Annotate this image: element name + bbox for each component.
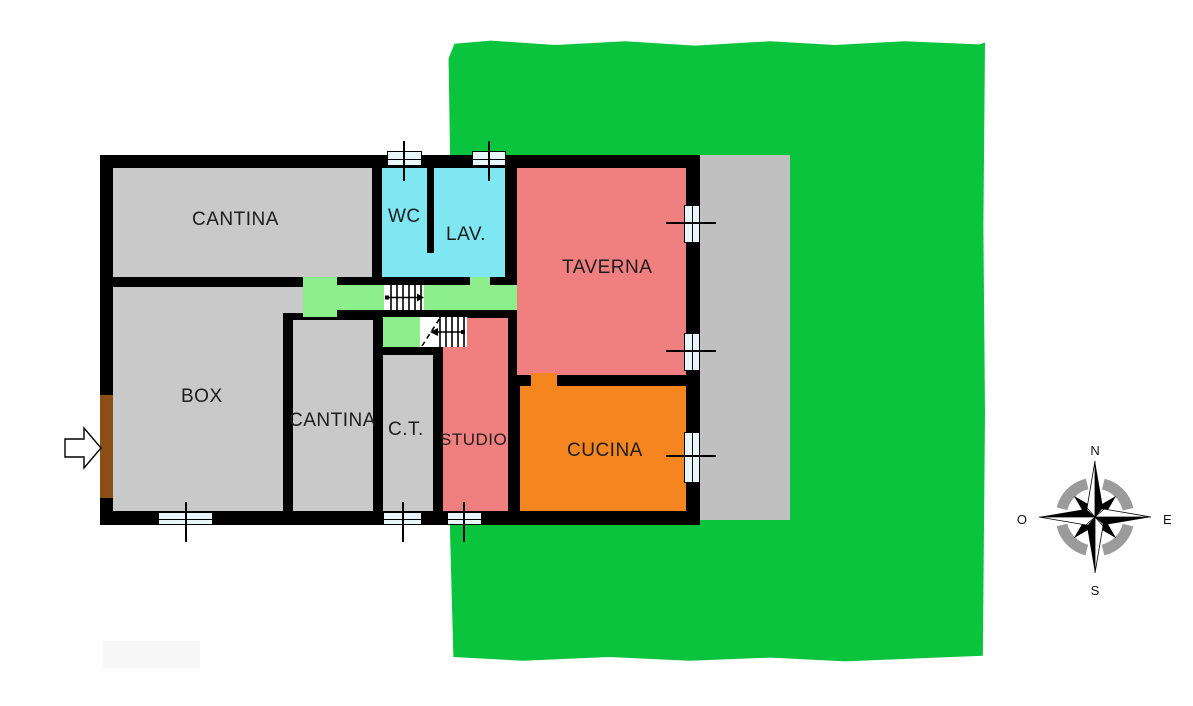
box-passage	[283, 287, 303, 313]
compass-north-label: N	[1090, 443, 1099, 458]
window-taverna-lower	[684, 333, 700, 371]
window-tick	[402, 502, 404, 542]
compass-west-label: O	[1017, 512, 1027, 527]
label-wc: WC	[388, 206, 421, 228]
window-tick	[666, 222, 716, 224]
entrance-arrow-icon	[64, 426, 102, 470]
wall-wc-lav-divider	[427, 168, 434, 253]
window-tick	[666, 455, 716, 457]
lav-door-opening	[470, 277, 490, 287]
label-lav: LAV.	[446, 224, 486, 246]
window-tick	[488, 141, 490, 181]
label-box: BOX	[181, 386, 223, 408]
label-studio: STUDIO	[440, 430, 507, 450]
compass-south-label: S	[1091, 583, 1100, 598]
faint-rectangle	[103, 641, 200, 668]
compass-east-label: E	[1163, 512, 1172, 527]
compass-rose-icon: N S E O	[1015, 428, 1175, 600]
stair-landing	[383, 317, 420, 347]
label-ct: C.T.	[388, 419, 424, 441]
stairs-down-icon	[420, 317, 467, 347]
stairs-up-icon	[384, 285, 424, 310]
window-cucina	[684, 432, 700, 483]
window-tick	[185, 502, 187, 542]
cucina-door-opening	[531, 373, 557, 386]
floor-plan-page: CANTINA WC LAV. TAVERNA BOX CANTINA C.T.…	[0, 0, 1193, 706]
label-cantina-lower: CANTINA	[289, 410, 376, 432]
label-cucina: CUCINA	[567, 440, 643, 462]
label-taverna: TAVERNA	[562, 257, 652, 279]
window-tick	[666, 350, 716, 352]
window-taverna-upper	[684, 205, 700, 243]
patio-area	[698, 155, 790, 520]
label-cantina-upper: CANTINA	[192, 209, 279, 231]
window-tick	[463, 502, 465, 542]
window-tick	[403, 141, 405, 181]
